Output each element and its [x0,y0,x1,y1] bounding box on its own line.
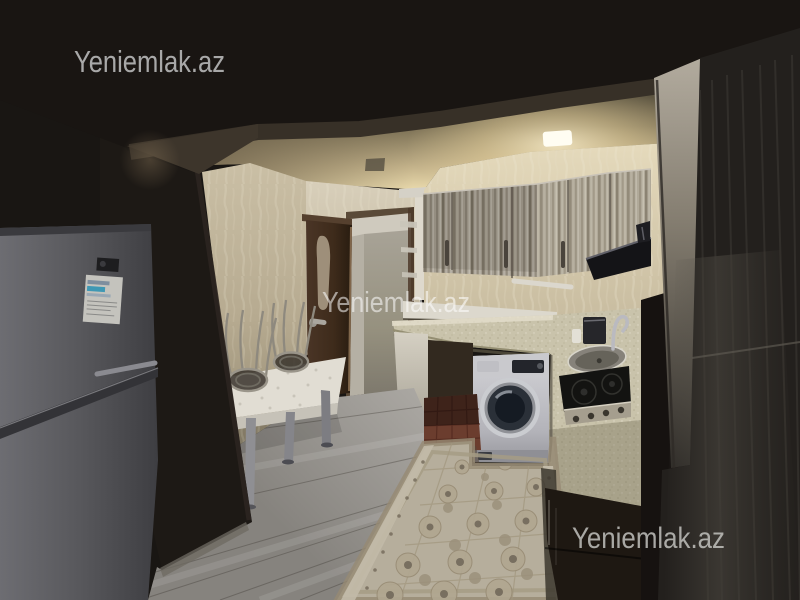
svg-text:Yeniemlak.az: Yeniemlak.az [74,44,225,79]
svg-text:Yeniemlak.az: Yeniemlak.az [322,287,470,319]
svg-text:Yeniemlak.az: Yeniemlak.az [572,522,725,555]
